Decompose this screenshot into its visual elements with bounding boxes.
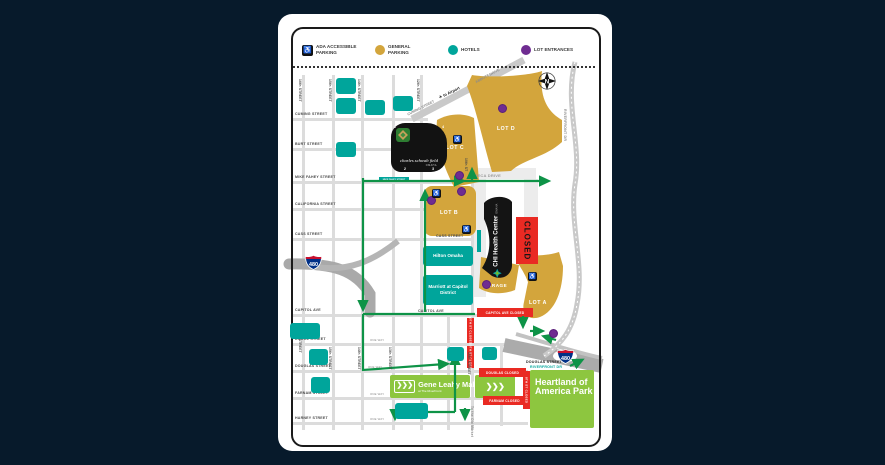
gene-leahy-subtitle: at The RiverFront bbox=[418, 389, 476, 393]
lot-entrance-dot bbox=[482, 280, 491, 289]
mall-east-chevrons-icon: ❯❯❯ bbox=[486, 382, 505, 391]
ada-accessible-icon: ♿ bbox=[528, 272, 537, 281]
closure-capitol-ave: CAPITOL AVE CLOSED bbox=[477, 308, 533, 317]
street-name-v-top: 12th STREET bbox=[416, 79, 420, 102]
lot-a-label: LOT A bbox=[529, 300, 547, 306]
hotel-block bbox=[336, 78, 356, 94]
lot-d-label: LOT D bbox=[497, 126, 515, 132]
lot-entrance-dot bbox=[455, 171, 464, 180]
street-name-h: CUMING STREET bbox=[295, 112, 327, 116]
legend-entrances-label: LOT ENTRANCES bbox=[534, 47, 576, 53]
stadium-gate-4: 4 bbox=[442, 125, 444, 129]
interstate-480-shield-west: 480 bbox=[305, 255, 322, 270]
hotel-block bbox=[393, 96, 413, 111]
street-name-v-top: 15th STREET bbox=[328, 79, 332, 102]
hotel-block bbox=[365, 100, 385, 115]
legend-divider bbox=[293, 66, 595, 68]
street-name-v-bottom: 10th STREET bbox=[467, 352, 471, 375]
lot-c-label: LOT C bbox=[446, 145, 464, 151]
one-way-label: ONE WAY bbox=[370, 417, 384, 421]
street-name-10th-mid: 10th ST bbox=[464, 158, 468, 171]
capitol-ave-mid-label: CAPITOL AVE bbox=[418, 309, 444, 313]
gene-leahy-mall: ❯❯❯ Gene Leahy Mall at The RiverFront bbox=[390, 375, 470, 398]
closure-douglas: DOUGLAS CLOSED bbox=[479, 368, 526, 377]
arena-city: OMAHA bbox=[496, 203, 498, 213]
hotels-dot bbox=[448, 45, 458, 55]
legend-general: GENERAL PARKING bbox=[375, 44, 442, 55]
closed-area-text: CLOSED bbox=[523, 221, 532, 260]
interstate-480-shield-southeast: 480 bbox=[557, 349, 574, 364]
hotel-block bbox=[447, 347, 464, 361]
cass-street-mid-label: CASS STREET bbox=[436, 234, 463, 238]
tenth-street-teal-tag bbox=[477, 230, 481, 252]
hotel-block bbox=[395, 403, 428, 419]
chi-health-logo-icon bbox=[493, 268, 502, 277]
hotel-block bbox=[290, 323, 320, 339]
street-name-h: CASS STREET bbox=[295, 232, 322, 236]
street-name-h: MIKE FAHEY STREET bbox=[295, 175, 335, 179]
general-parking-dot bbox=[375, 45, 385, 55]
lot-entrances-dot bbox=[521, 45, 531, 55]
arena-name: CHI Health Center bbox=[494, 215, 500, 266]
street-name-h: HARNEY STREET bbox=[295, 416, 328, 420]
hotel-block bbox=[482, 347, 497, 360]
street-name-v-top: 14th STREET bbox=[357, 79, 361, 102]
street-name-h: CALIFORNIA STREET bbox=[295, 202, 336, 206]
legend-hotels-label: HOTELS bbox=[461, 47, 503, 53]
chi-health-center: CHI Health Center OMAHA bbox=[481, 204, 513, 276]
event-parking-map: ♿ ADA ACCESSIBLE PARKING GENERAL PARKING… bbox=[278, 14, 612, 451]
hotel-block bbox=[309, 349, 328, 365]
hotel-block bbox=[336, 142, 356, 157]
gene-leahy-title: Gene Leahy Mall bbox=[418, 380, 476, 389]
shield-west-number: 480 bbox=[309, 262, 318, 268]
ada-parking-icon: ♿ bbox=[302, 45, 313, 56]
mike-fahey-teal-tag: MIKE FAHEY STREET bbox=[379, 177, 409, 182]
page-background: ♿ ADA ACCESSIBLE PARKING GENERAL PARKING… bbox=[0, 0, 885, 465]
hotel-block bbox=[311, 377, 330, 393]
arena-drive-pad bbox=[524, 179, 538, 217]
gene-leahy-mall-east: ❯❯❯ bbox=[475, 375, 515, 398]
map-legend: ♿ ADA ACCESSIBLE PARKING GENERAL PARKING… bbox=[302, 38, 588, 62]
stadium-gate-3: 3 bbox=[432, 167, 434, 171]
street-name-h: BURT STREET bbox=[295, 142, 322, 146]
baseball-field-icon bbox=[396, 128, 410, 142]
one-way-label: ONE WAY bbox=[370, 338, 384, 342]
compass-n: N bbox=[545, 78, 550, 85]
lot-b-label: LOT B bbox=[440, 210, 458, 216]
heartland-of-america-park: Heartland of America Park bbox=[530, 370, 594, 428]
closure-10th-upper: 10TH ST CLOSED bbox=[467, 318, 474, 343]
one-way-label: ONE WAY bbox=[368, 365, 382, 369]
ada-accessible-icon: ♿ bbox=[453, 135, 462, 144]
stadium-name: charles schwab field bbox=[391, 158, 447, 163]
north-compass-icon: N bbox=[538, 72, 556, 90]
stadium-gate-2: 2 bbox=[404, 167, 406, 171]
legend-general-label: GENERAL PARKING bbox=[388, 44, 430, 55]
hilton-omaha: Hilton Omaha bbox=[423, 246, 473, 266]
ada-accessible-icon: ♿ bbox=[462, 225, 471, 234]
stadium-gate-1: 1 bbox=[394, 125, 396, 129]
riverfront-drive-road bbox=[544, 62, 579, 356]
legend-ada-label: ADA ACCESSIBLE PARKING bbox=[316, 44, 358, 55]
arena-label-inner: CHI Health Center OMAHA bbox=[493, 203, 502, 277]
charles-schwab-field: 1 4 2 3 charles schwab field OMAHA bbox=[391, 123, 447, 172]
street-name-v-bottom: 13th STREET bbox=[388, 347, 392, 370]
shield-se-number: 480 bbox=[561, 356, 570, 362]
legend-entrances: LOT ENTRANCES bbox=[521, 45, 588, 55]
lot-entrance-dot bbox=[457, 187, 466, 196]
stadium-city: OMAHA bbox=[426, 164, 437, 167]
riverfront-dr-se-label: RIVERFRONT DR bbox=[530, 365, 562, 369]
to-old-market-label: To the Old Market bbox=[470, 406, 474, 437]
gene-leahy-chevrons-icon: ❯❯❯ bbox=[394, 380, 415, 393]
marriott-capitol-district: Marriott at Capitol District bbox=[423, 275, 473, 305]
legend-ada: ♿ ADA ACCESSIBLE PARKING bbox=[302, 44, 369, 55]
street-name-v-bottom: 15th STREET bbox=[328, 347, 332, 370]
closure-8th: 8TH ST CLOSED bbox=[523, 371, 530, 409]
meca-drive-label: MECA DRIVE bbox=[474, 173, 501, 178]
lot-entrance-dot bbox=[549, 329, 558, 338]
street-name-v-bottom: 14th STREET bbox=[357, 347, 361, 370]
legend-hotels: HOTELS bbox=[448, 45, 515, 55]
street-name-h: CAPITOL AVE bbox=[295, 308, 321, 312]
closure-farnam: FARNAM CLOSED bbox=[483, 396, 526, 405]
hotel-block bbox=[336, 98, 356, 114]
lot-entrance-dot bbox=[498, 104, 507, 113]
closed-area-block: CLOSED bbox=[516, 217, 538, 264]
riverfront-dr-label: RIVERFRONT DR bbox=[563, 109, 567, 141]
street-name-v-top: 16th STREET bbox=[298, 79, 302, 102]
one-way-label: ONE WAY bbox=[370, 392, 384, 396]
ada-accessible-icon: ♿ bbox=[432, 189, 441, 198]
